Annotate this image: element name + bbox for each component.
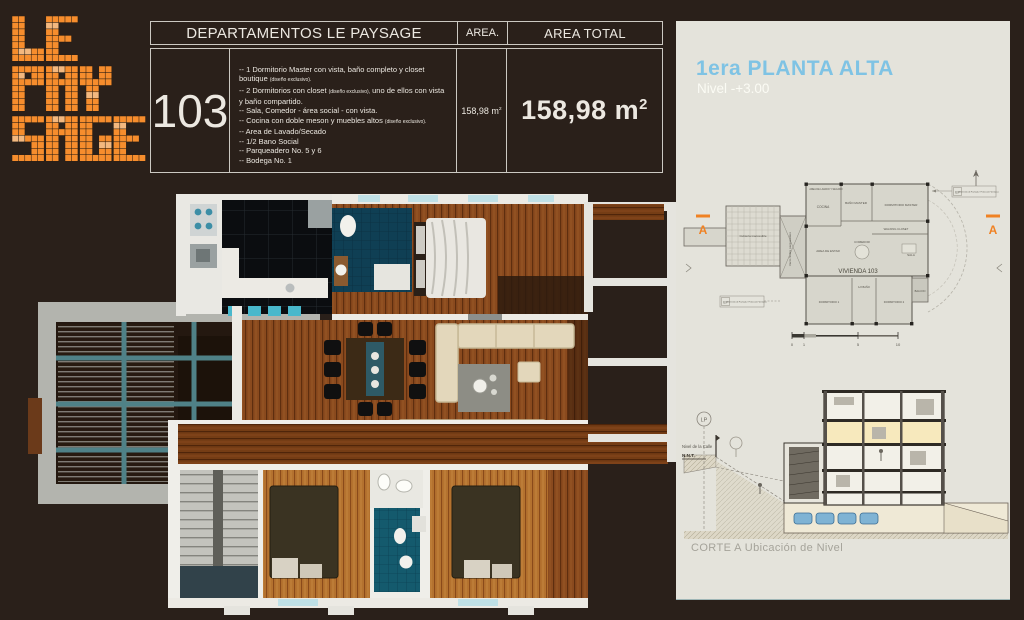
spec-table-body: 103 -- 1 Dormitorio Master con vista, ba… <box>150 48 663 173</box>
label-vivienda: VIVIENDA 103 <box>838 269 878 275</box>
tree <box>730 437 742 449</box>
label-dormitorio2: DORMITORIO 2 <box>884 300 905 304</box>
ef-note-left: EF Elemento de Fachada / Protección Vent… <box>720 296 780 307</box>
svg-text:Elemento de Fachada / Protecci: Elemento de Fachada / Protección Ventana… <box>959 191 999 194</box>
header-area-total: AREA TOTAL <box>508 22 662 44</box>
label-lavado: AREA DE LAVADO Y SECADO <box>809 188 842 191</box>
area-sup: 2 <box>499 107 502 112</box>
feature-item: -- Bodega No. 1 <box>239 156 450 165</box>
fridge <box>308 200 332 228</box>
svg-text:Elemento de Fachada / Protecci: Elemento de Fachada / Protección Ventana… <box>727 301 767 304</box>
spec-table-header: DEPARTAMENTOS LE PAYSAGE AREA. AREA TOTA… <box>150 21 663 45</box>
header-area: AREA. <box>458 22 508 44</box>
section-drawing: LP Nivel de la Calle N.N.T. <box>676 381 1010 561</box>
balcony <box>584 202 676 462</box>
lp-marker: LP <box>697 412 711 531</box>
label-cocina: COCINA <box>817 205 830 209</box>
feature-item: -- Area de Lavado/Secado <box>239 127 450 136</box>
label-bano-master: BAÑO MASTER <box>845 200 868 205</box>
svg-text:10: 10 <box>896 342 901 347</box>
area-value: 158,98 m2 <box>457 49 507 172</box>
spec-table: DEPARTAMENTOS LE PAYSAGE AREA. AREA TOTA… <box>150 21 663 173</box>
svg-text:A: A <box>989 223 998 237</box>
north-arrow <box>973 170 979 186</box>
label-sala: SALA <box>907 253 915 257</box>
feature-list: -- 1 Dormitorio Master con vista, baño c… <box>230 49 457 172</box>
unit-number: 103 <box>151 49 230 172</box>
feature-item: -- Parqueadero No. 5 y 6 <box>239 146 450 155</box>
svg-text:5: 5 <box>857 342 860 347</box>
area-number: 158,98 m <box>461 106 499 116</box>
bedroom-2 <box>430 470 548 600</box>
bedroom-1 <box>263 470 370 600</box>
toilet <box>340 215 356 237</box>
area-total-sup: 2 <box>639 97 648 113</box>
label-cubierta: Cubierta inaccesible <box>739 234 766 238</box>
label-dormitorio1: DORMITORIO 1 <box>819 300 840 304</box>
shower-tray <box>374 264 410 290</box>
svg-text:LP: LP <box>701 418 708 424</box>
label-walking-closet: WALKING CLOSET <box>884 227 909 231</box>
panel-title: 1era PLANTA ALTA <box>696 57 894 81</box>
feature-item: -- 1/2 Bano Social <box>239 137 450 146</box>
feature-item: -- 2 Dormitorios con closet (diseño excl… <box>239 86 450 106</box>
master-suite <box>332 194 588 324</box>
nnt-label: N.N.T. <box>682 453 695 458</box>
section-marker-right: A <box>986 216 1002 272</box>
svg-text:1: 1 <box>803 342 806 347</box>
cooktop <box>190 204 217 236</box>
svg-text:A: A <box>699 223 708 237</box>
label-comedor: COMEDOR <box>854 240 871 244</box>
feature-item: -- Cocina con doble meson y muebles alto… <box>239 116 450 127</box>
street-level-label: Nivel de la Calle <box>682 444 713 449</box>
closet-shadow <box>498 276 588 320</box>
shared-bathroom <box>370 470 426 592</box>
feature-item: -- Sala, Comedor - área social - con vis… <box>239 106 450 115</box>
label-dormitorio-master: DORMITORIO MASTER <box>885 203 919 207</box>
label-balcon: BALCON <box>915 289 926 293</box>
le-paysage-logo <box>12 16 150 164</box>
area-total-value: 158,98 m2 <box>507 49 662 172</box>
feature-item: -- 1 Dormitorio Master con vista, baño c… <box>239 65 450 85</box>
label-vacio: Vacío Sobre parqueadero <box>788 232 792 266</box>
left-deck <box>28 398 42 454</box>
label-area-estar: AREA DE ESTAR <box>816 249 840 253</box>
kitchen-island <box>222 278 328 298</box>
kitchen-area <box>176 194 334 316</box>
ef-note-right: EF Elemento de Fachada / Protección Vent… <box>932 186 999 197</box>
section-caption: CORTE A Ubicación de Nivel <box>691 542 843 554</box>
area-total-number: 158,98 m <box>521 95 639 125</box>
scale-bar: 0 1 5 10 <box>791 332 901 347</box>
bottom-wing <box>168 420 668 615</box>
brochure-page: DEPARTAMENTOS LE PAYSAGE AREA. AREA TOTA… <box>0 0 1024 620</box>
plan-panel: 1era PLANTA ALTA Nivel -+3.00 Cubierta i… <box>676 21 1010 600</box>
panel-subtitle: Nivel -+3.00 <box>697 81 769 96</box>
floorplan-drawing: Cubierta inaccesible Vacío Sobre parquea… <box>676 166 1010 376</box>
svg-text:0: 0 <box>791 342 794 347</box>
header-departamentos: DEPARTAMENTOS LE PAYSAGE <box>151 22 458 44</box>
floorplan-3d-render <box>28 186 676 618</box>
